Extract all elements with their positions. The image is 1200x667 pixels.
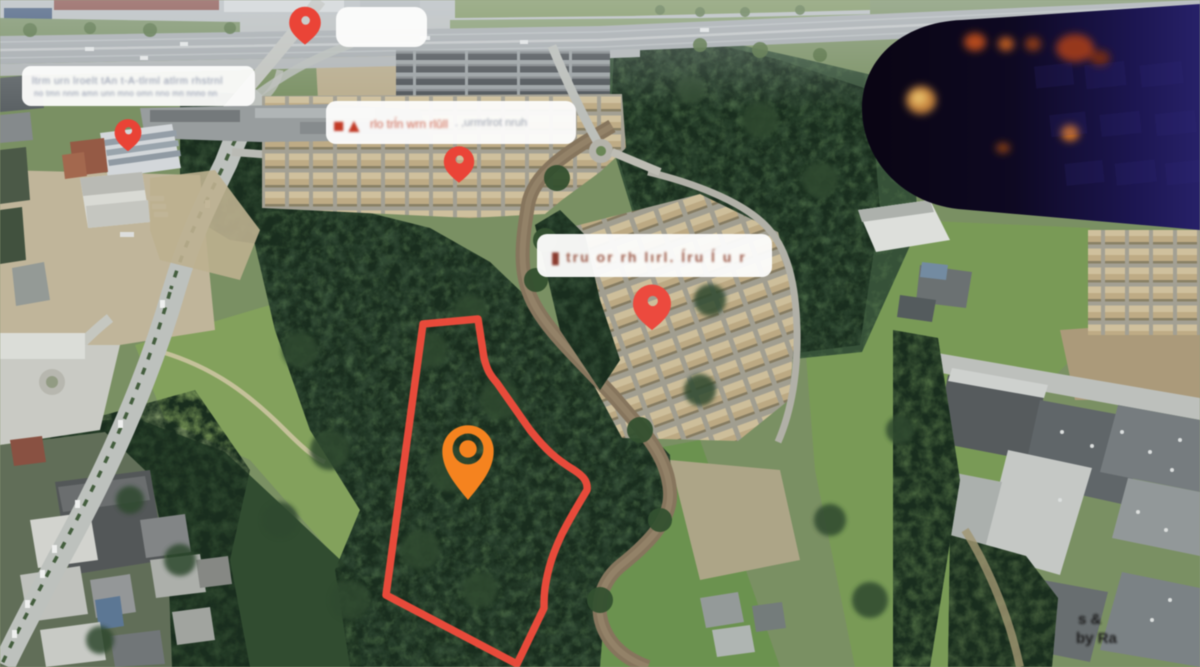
svg-text:rlo trĺn wrn rlŭll: rlo trĺn wrn rlŭll: [370, 116, 448, 131]
svg-text:ltrm urn lroelt tAn t-A-tlrml: ltrm urn lroelt tAn t-A-tlrml atlrm rhst…: [32, 76, 223, 87]
svg-text:s &: s &: [1078, 611, 1102, 628]
svg-text:by Ra: by Ra: [1076, 630, 1118, 647]
svg-text:▮: ▮: [551, 250, 560, 267]
svg-text:no tmn nnm amn unn mno omn nno: no tmn nnm amn unn mno omn nno mn nnno n…: [34, 89, 218, 98]
svg-text:■▲: ■▲: [333, 116, 363, 137]
svg-text:. ,urmrlrot nruh: . ,urmrlrot nruh: [455, 117, 527, 129]
svg-text:tru or rh lırl. ĺru ĺ u r: tru or rh lırl. ĺru ĺ u r: [566, 248, 747, 265]
